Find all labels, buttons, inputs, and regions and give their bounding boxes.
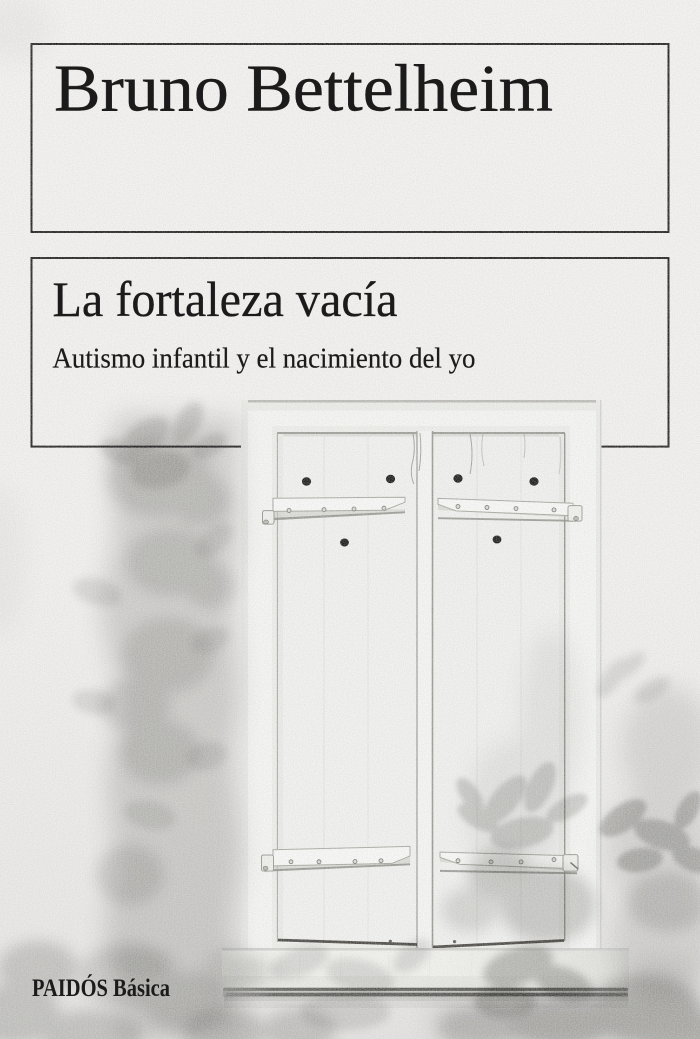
svg-text:Autismo infantil y el nacimien: Autismo infantil y el nacimiento del yo — [53, 343, 476, 375]
svg-text:La fortaleza vacía: La fortaleza vacía — [53, 271, 398, 327]
svg-text:PAIDÓS Básica: PAIDÓS Básica — [32, 974, 170, 1002]
svg-text:Bruno Bettelheim: Bruno Bettelheim — [54, 52, 553, 126]
